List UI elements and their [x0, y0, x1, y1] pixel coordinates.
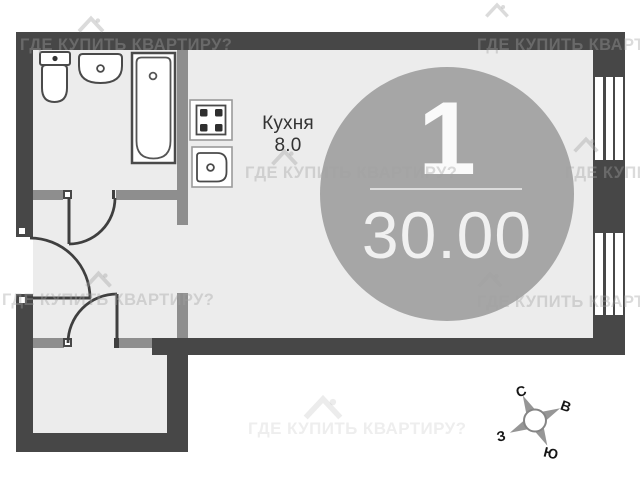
door-entrance [28, 238, 91, 298]
washbasin [79, 54, 122, 83]
compass-south-label: Ю [542, 443, 560, 462]
compass: С В З Ю [485, 378, 590, 473]
watermark-house-icon [80, 270, 117, 288]
compass-east-label: В [559, 397, 574, 415]
watermark-house-icon [484, 2, 510, 18]
watermark-house-icon [293, 394, 353, 420]
door-swing-arc [69, 198, 115, 244]
compass-north-label: С [514, 382, 529, 400]
watermark-text: ГДЕ КУПИТЬ КВАРТИРУ? [20, 36, 232, 55]
stove-burner [200, 109, 208, 117]
watermark-text: ГДЕ КУПИТЬ КВАРТИРУ? [477, 36, 640, 55]
stove-icon [190, 100, 232, 140]
stove-burner [215, 124, 223, 132]
door-bathroom [69, 198, 115, 244]
toilet [40, 52, 70, 102]
watermark-text: ГДЕ КУПИТЬ КВАРТИРУ? [2, 291, 214, 310]
stove-burner [215, 109, 223, 117]
watermark-house-icon [572, 136, 600, 153]
floor-plan-image: 1 30.00 [0, 0, 640, 480]
watermark-text: ГДЕ КУПИТЬ КВАРТИРУ? [565, 164, 640, 183]
stove-burner [200, 124, 208, 132]
compass-hub [524, 410, 546, 432]
watermark-text: ГДЕ КУПИТЬ КВАРТИРУ? [245, 164, 457, 183]
bathtub-drain [150, 73, 157, 80]
watermark-house-icon [72, 15, 110, 33]
door-swing-arc [30, 238, 90, 298]
kitchen-sink [192, 147, 232, 187]
kitchen-sink-drain [207, 164, 214, 171]
compass-west-label: З [495, 427, 507, 445]
watermark-text: ГДЕ КУПИТЬ КВАРТИРУ? [477, 293, 640, 312]
bathtub [132, 53, 175, 163]
bathtub-outer [132, 53, 175, 163]
watermark-text: ГДЕ КУПИТЬ КВАРТИРУ? [248, 419, 466, 439]
washbasin-drain [97, 65, 104, 72]
toilet-button [52, 56, 57, 61]
watermark-house-icon [474, 271, 506, 288]
kitchen-name: Кухня [238, 113, 338, 135]
toilet-bowl [42, 65, 67, 102]
